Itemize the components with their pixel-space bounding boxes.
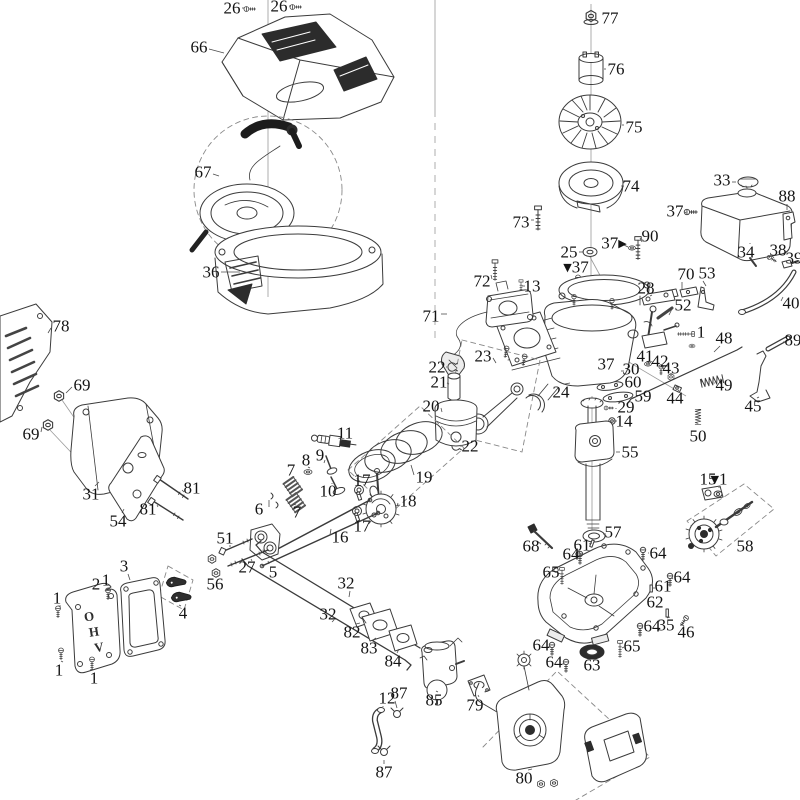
exploded-parts-diagram: OHV (0, 0, 800, 800)
part-label-69: 69 (74, 376, 91, 395)
diagram-canvas: OHV (0, 0, 800, 800)
part-label-56: 56 (207, 575, 224, 594)
part-label-70: 70 (678, 265, 695, 284)
part-label-85: 85 (426, 691, 443, 710)
part-label-31: 31 (83, 485, 100, 504)
part-label-1: 1 (55, 661, 64, 680)
part-governor-gear-assembly-drawing (686, 484, 774, 556)
part-label-37: 37 (598, 355, 616, 374)
part-washer-37-drawing (629, 246, 636, 250)
part-label-22: 22 (462, 437, 479, 456)
part-label-44: 44 (667, 389, 685, 408)
part-bracket-53-drawing (698, 287, 714, 310)
part-bolt-26-drawing (244, 7, 256, 12)
part-label-1: 1 (102, 571, 111, 590)
part-label-64: 64 (650, 544, 668, 563)
part-label-6: 6 (255, 500, 264, 519)
part-label-59: 59 (635, 387, 652, 406)
part-label-36: 36 (203, 263, 220, 282)
part-nut-drawing (538, 780, 545, 788)
part-bolt-65-drawing (618, 641, 623, 658)
part-label-1: 1 (90, 669, 99, 688)
part-label-57: 57 (605, 523, 623, 542)
part-label-64: 64 (674, 568, 692, 587)
part-label-16: 16 (332, 528, 349, 547)
part-label-7: 7 (293, 503, 302, 522)
part-label-37: 37 (667, 202, 685, 221)
part-nut-69-drawing (54, 391, 63, 402)
part-bolt-72-drawing (492, 260, 498, 280)
part-label-38: 38 (770, 241, 787, 260)
part-label-9: 9 (316, 446, 325, 465)
part-label-40: 40 (783, 294, 800, 313)
part-label-5: 5 (269, 563, 278, 582)
part-screw-37-drawing (684, 209, 697, 214)
part-label-64: 64 (546, 653, 564, 672)
part-label-89: 89 (785, 331, 800, 350)
part-label-18: 18 (400, 492, 417, 511)
part-label-82: 82 (344, 623, 361, 642)
part-label-28: 28 (638, 279, 655, 298)
leader-line (493, 358, 496, 363)
part-label-17: 17 (354, 517, 372, 536)
part-label-64: 64 (563, 545, 581, 564)
part-label-4: 4 (179, 604, 188, 623)
part-label-10: 10 (320, 482, 337, 501)
part-retainer-8-drawing (304, 470, 312, 475)
leader-line (128, 574, 130, 580)
part-rocker-arms-drawing (159, 566, 193, 610)
part-label-54: 54 (110, 512, 128, 531)
part-valve-9-drawing (326, 456, 338, 475)
part-label-33: 33 (714, 171, 731, 190)
part-label-32: 32 (320, 605, 337, 624)
part-bolt-26-drawing (290, 5, 302, 10)
part-top-cover-drawing (222, 14, 394, 120)
part-flywheel-fan-drawing (559, 95, 621, 149)
part-label-21: 21 (431, 373, 448, 392)
part-nut-69-drawing (43, 420, 52, 431)
part-washer-drawing (689, 344, 695, 348)
part-label-37: ▾37 (563, 258, 589, 277)
part-label-35: 35 (658, 616, 675, 635)
part-label-53: 53 (699, 264, 716, 283)
part-muffler-guard-drawing (0, 304, 52, 422)
part-label-58: 58 (737, 537, 754, 556)
leader-line (209, 49, 224, 53)
part-label-66: 66 (191, 38, 208, 57)
part-bolt-73-drawing (535, 206, 542, 230)
part-cover-gasket-3-drawing (121, 578, 166, 657)
part-clip-87-drawing (378, 746, 390, 756)
part-label-79: 79 (467, 696, 484, 715)
part-label-2: 2 (92, 575, 101, 594)
part-label-46: 46 (678, 623, 695, 642)
part-governor-arm-45-drawing (750, 351, 770, 402)
part-label-24: 24 (553, 383, 571, 402)
part-governor-control-52-drawing (642, 306, 679, 348)
part-flywheel-drawing (559, 162, 623, 212)
part-crankshaft-drawing (575, 398, 614, 534)
leader-line (685, 212, 686, 213)
part-bolt-1-drawing (59, 648, 64, 660)
part-label-76: 76 (608, 60, 625, 79)
part-label-1: 1 (697, 323, 706, 342)
leader-line (213, 174, 219, 176)
part-fuel-cap-drawing (738, 177, 758, 188)
part-label-27: 27 (239, 558, 257, 577)
part-label-80: 80 (516, 769, 533, 788)
part-label-78: 78 (53, 317, 70, 336)
part-label-72: 72 (474, 272, 491, 291)
part-label-45: 45 (745, 397, 762, 416)
part-label-8: 8 (302, 451, 311, 470)
leader-line (157, 505, 158, 507)
part-label-49: 49 (716, 376, 733, 395)
part-label-32: 32 (338, 574, 355, 593)
part-screw-64-drawing (563, 659, 568, 672)
part-label-75: 75 (626, 118, 643, 137)
part-label-52: 52 (675, 296, 692, 315)
part-crankcase-cover-drawing (538, 544, 653, 645)
part-label-69: 69 (23, 425, 40, 444)
part-label-26: 26 (224, 0, 241, 18)
part-label-74: 74 (623, 177, 641, 196)
part-label-65: 65 (543, 563, 560, 582)
part-label-62: 62 (647, 593, 664, 612)
part-label-87: 87 (376, 763, 394, 782)
part-valve-spring-7-drawing (283, 477, 302, 496)
part-label-14: 14 (616, 412, 634, 431)
part-label-51: 51 (217, 529, 234, 548)
part-label-90: 90 (642, 227, 659, 246)
part-label-43: 43 (663, 359, 680, 378)
part-label-83: 83 (361, 639, 378, 658)
part-nut-drawing (551, 779, 558, 787)
part-bolt-1-drawing (56, 606, 61, 618)
part-label-73: 73 (513, 213, 530, 232)
part-label-1: 1 (53, 589, 62, 608)
part-bolt-29-drawing (604, 406, 613, 410)
part-label-20: 20 (423, 397, 440, 416)
part-label-63: 63 (584, 656, 601, 675)
leader-line (41, 427, 42, 432)
part-label-39: 39 (786, 249, 800, 268)
part-label-17: 17 (354, 471, 372, 490)
part-label-68: 68 (523, 537, 540, 556)
part-label-67: 67 (195, 163, 213, 182)
part-label-37: 37▸ (601, 234, 627, 253)
part-label-77: 77 (602, 9, 620, 28)
part-label-23: 23 (475, 347, 492, 366)
leader-line (66, 387, 72, 393)
part-label-48: 48 (716, 329, 733, 348)
part-label-84: 84 (385, 652, 403, 671)
part-washer-25-drawing (583, 248, 597, 257)
part-label-50: 50 (690, 427, 707, 446)
part-label-7: 7 (287, 461, 296, 480)
part-valve-keepers-6-drawing (271, 493, 278, 508)
part-air-cleaner-assembly-drawing (476, 666, 651, 800)
part-nut-56-drawing (208, 555, 216, 564)
part-label-11: 11 (337, 424, 353, 443)
part-crown-washer-drawing (517, 651, 531, 669)
part-piston-pin-drawing (448, 373, 460, 401)
part-label-88: 88 (779, 187, 796, 206)
part-label-81: 81 (184, 479, 201, 498)
part-bracket-88-drawing (783, 212, 795, 240)
leader-line (491, 275, 492, 279)
part-spring-50-drawing (695, 409, 701, 424)
part-clip-87-drawing (391, 708, 403, 718)
part-label-71: 71 (423, 307, 440, 326)
part-label-55: 55 (622, 443, 639, 462)
part-fan-housing-drawing (215, 226, 383, 314)
part-label-13: 13 (524, 277, 541, 296)
leader-line (411, 465, 414, 475)
part-label-3: 3 (120, 557, 129, 576)
part-label-87: 87 (391, 684, 409, 703)
part-label-26: 26 (271, 0, 288, 16)
part-screw-64-drawing (637, 623, 642, 636)
part-label-81: 81 (140, 500, 157, 519)
part-label-19: 19 (416, 468, 433, 487)
part-label-1: ▾1 (710, 470, 727, 489)
part-label-34: 34 (738, 243, 756, 262)
part-rocker-bracket-5-drawing (250, 524, 280, 560)
part-labels-layer: 262666673677767574739025▾3737▸7213713337… (23, 0, 800, 788)
part-label-65: 65 (624, 637, 641, 656)
